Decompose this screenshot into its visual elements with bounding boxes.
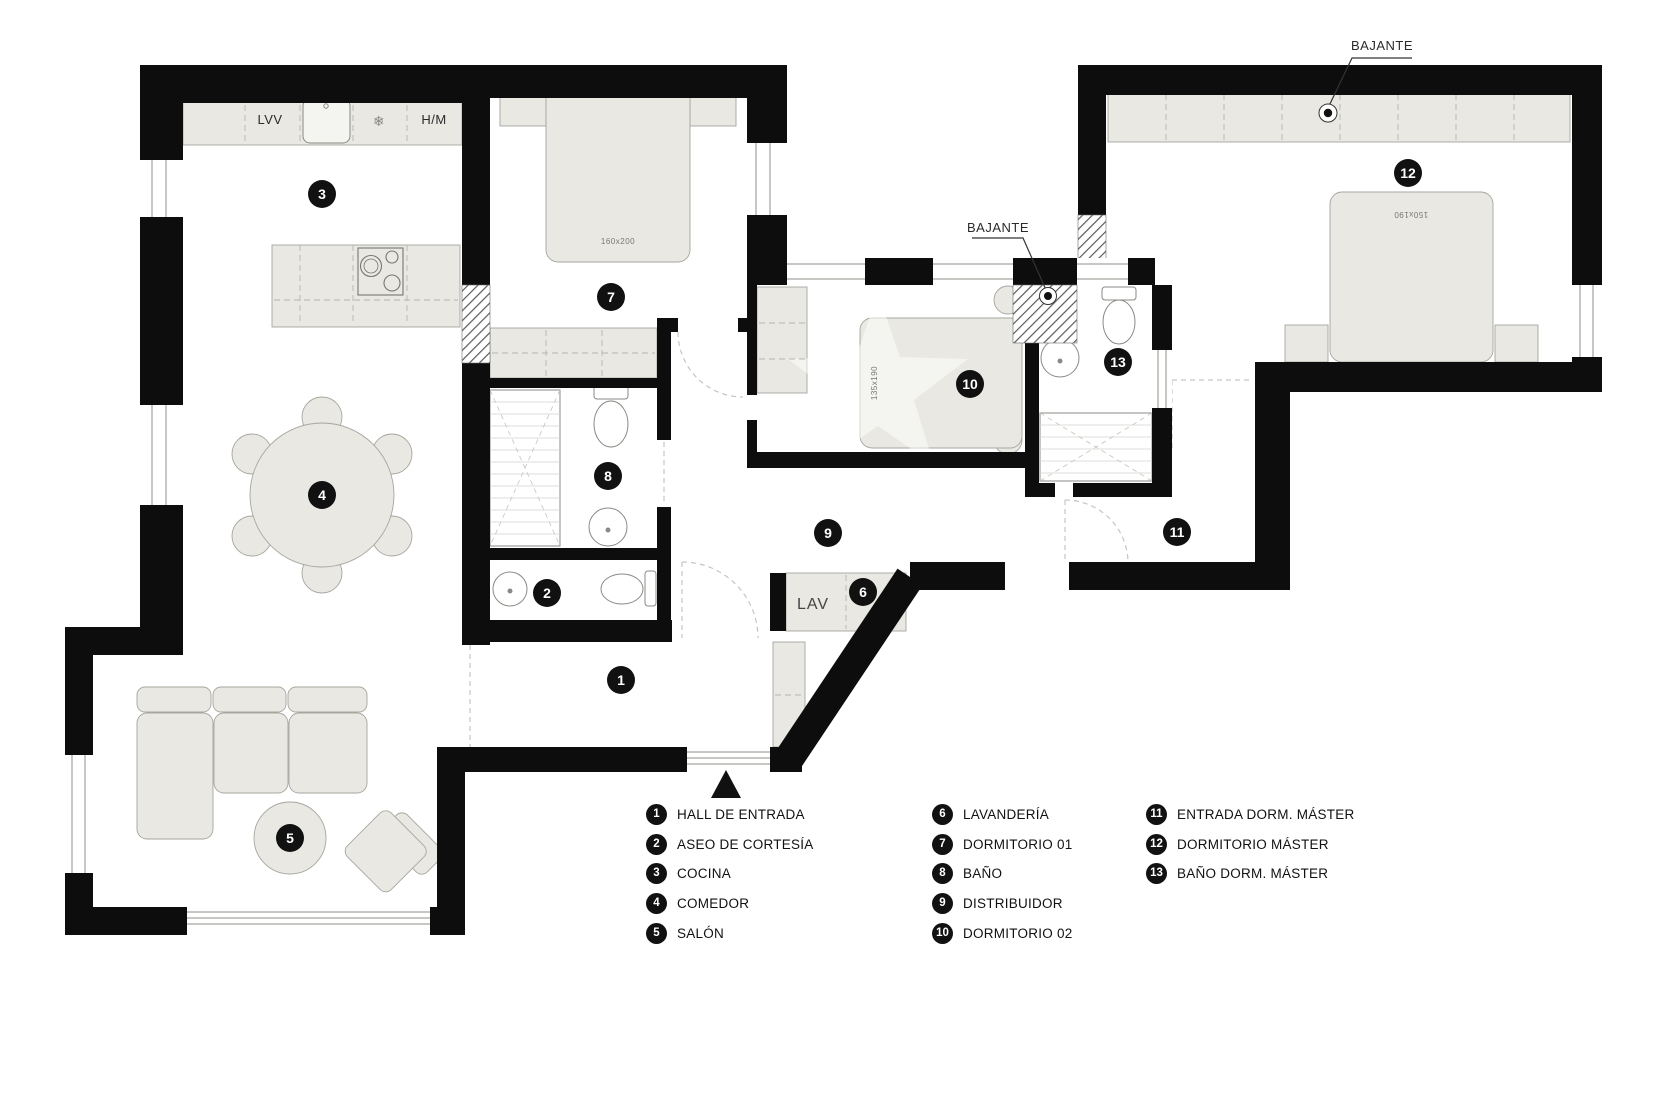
- room-number-8: 8: [594, 462, 622, 490]
- sofa-back: [137, 687, 211, 712]
- legend-item-4: 4COMEDOR: [646, 893, 749, 914]
- svg-text:13: 13: [1110, 354, 1126, 370]
- legend-num-3: 3: [646, 863, 667, 884]
- shower-tray: [490, 390, 560, 546]
- legend-num-12: 12: [1146, 834, 1167, 855]
- svg-text:7: 7: [607, 289, 615, 305]
- kitchen-hm-label: H/M: [421, 112, 446, 127]
- sink-icon: [1041, 339, 1079, 377]
- legend-label-9: DISTRIBUIDOR: [963, 896, 1063, 911]
- room-number-12: 12: [1394, 159, 1422, 187]
- bed-160x200: [546, 84, 690, 262]
- kitchen-lvv-label: LVV: [257, 112, 282, 127]
- room-number-7: 7: [597, 283, 625, 311]
- freezer-icon: ❄: [373, 113, 385, 129]
- door-arc: [1065, 500, 1128, 563]
- svg-text:5: 5: [286, 830, 294, 846]
- legend-item-7: 7DORMITORIO 01: [932, 834, 1073, 855]
- legend-item-8: 8BAÑO: [932, 863, 1002, 884]
- legend-item-11: 11ENTRADA DORM. MÁSTER: [1146, 804, 1355, 825]
- legend-num-9: 9: [932, 893, 953, 914]
- svg-text:9: 9: [824, 525, 832, 541]
- svg-text:10: 10: [962, 376, 978, 392]
- legend-label-4: COMEDOR: [677, 896, 749, 911]
- legend-label-6: LAVANDERÍA: [963, 807, 1049, 822]
- legend-item-3: 3COCINA: [646, 863, 731, 884]
- room-number-3: 3: [308, 180, 336, 208]
- legend-label-12: DORMITORIO MÁSTER: [1177, 837, 1329, 852]
- legend-num-6: 6: [932, 804, 953, 825]
- room-number-2: 2: [533, 579, 561, 607]
- svg-text:1: 1: [617, 672, 625, 688]
- legend-item-2: 2ASEO DE CORTESÍA: [646, 834, 814, 855]
- legend-item-13: 13BAÑO DORM. MÁSTER: [1146, 863, 1328, 884]
- legend-item-12: 12DORMITORIO MÁSTER: [1146, 834, 1329, 855]
- sink-icon: [589, 508, 627, 546]
- door-arc: [682, 562, 758, 638]
- svg-text:4: 4: [318, 487, 326, 503]
- sofa-seat: [214, 713, 288, 793]
- sofa-back: [288, 687, 367, 712]
- bed7-size-label: 160x200: [601, 237, 635, 246]
- legend-label-2: ASEO DE CORTESÍA: [677, 837, 814, 852]
- legend-num-2: 2: [646, 834, 667, 855]
- entrance-arrow-icon: [711, 770, 741, 798]
- legend-num-10: 10: [932, 923, 953, 944]
- toilet-icon: [594, 386, 628, 447]
- legend-label-1: HALL DE ENTRADA: [677, 807, 805, 822]
- cooktop-icon: [358, 248, 403, 295]
- aseo2-fixtures: [493, 571, 656, 606]
- legend-num-7: 7: [932, 834, 953, 855]
- floor-plan-drawing: BAJANTE BAJANTE LVV H/M ❄ LAV 160x200 13…: [0, 0, 1662, 1094]
- legend-label-8: BAÑO: [963, 866, 1002, 881]
- room-number-4: 4: [308, 481, 336, 509]
- legend-num-4: 4: [646, 893, 667, 914]
- bajante-mid-label: BAJANTE: [967, 220, 1029, 235]
- legend-item-10: 10DORMITORIO 02: [932, 923, 1073, 944]
- wardrobe: [1108, 92, 1570, 142]
- sink-icon: [493, 572, 527, 606]
- shower-tray: [1040, 413, 1152, 481]
- toilet-icon: [601, 571, 656, 606]
- legend-label-11: ENTRADA DORM. MÁSTER: [1177, 807, 1355, 822]
- bed10-size-label: 135x190: [870, 366, 879, 400]
- room-number-11: 11: [1163, 518, 1191, 546]
- legend-label-3: COCINA: [677, 866, 731, 881]
- room-number-1: 1: [607, 666, 635, 694]
- sofa-back: [213, 687, 286, 712]
- bajante-top-label: BAJANTE: [1351, 38, 1413, 53]
- nightstand: [1495, 325, 1538, 362]
- legend-num-5: 5: [646, 923, 667, 944]
- svg-text:8: 8: [604, 468, 612, 484]
- room-number-9: 9: [814, 519, 842, 547]
- legend-item-9: 9DISTRIBUIDOR: [932, 893, 1063, 914]
- nightstand: [1285, 325, 1328, 362]
- legend-label-10: DORMITORIO 02: [963, 926, 1073, 941]
- door-arc: [678, 332, 743, 397]
- legend-item-6: 6LAVANDERÍA: [932, 804, 1049, 825]
- legend-num-1: 1: [646, 804, 667, 825]
- svg-text:12: 12: [1400, 165, 1416, 181]
- legend-item-5: 5SALÓN: [646, 923, 724, 944]
- svg-text:11: 11: [1170, 524, 1185, 540]
- sofa-set: [137, 687, 446, 904]
- master-furniture: [1108, 92, 1570, 362]
- room-number-13: 13: [1104, 348, 1132, 376]
- bedroom7-furniture: [490, 84, 736, 378]
- svg-text:3: 3: [318, 186, 326, 202]
- legend-item-1: 1HALL DE ENTRADA: [646, 804, 805, 825]
- bed12-size-label: 150x190: [1394, 210, 1428, 219]
- wardrobe: [757, 287, 807, 393]
- room-number-10: 10: [956, 370, 984, 398]
- floor-plan-page: BAJANTE BAJANTE LVV H/M ❄ LAV 160x200 13…: [0, 0, 1662, 1094]
- toilet-icon: [1102, 287, 1136, 344]
- sofa-chaise: [137, 713, 213, 839]
- svg-text:2: 2: [543, 585, 551, 601]
- laundry-lav-label: LAV: [797, 596, 829, 613]
- legend-label-7: DORMITORIO 01: [963, 837, 1073, 852]
- sofa-seat: [289, 713, 367, 793]
- room-number-6: 6: [849, 578, 877, 606]
- legend-num-13: 13: [1146, 863, 1167, 884]
- legend-num-8: 8: [932, 863, 953, 884]
- svg-text:6: 6: [859, 584, 867, 600]
- legend-label-5: SALÓN: [677, 926, 724, 941]
- legend-num-11: 11: [1146, 804, 1167, 825]
- room-number-5: 5: [276, 824, 304, 852]
- armchair: [342, 800, 446, 904]
- legend-label-13: BAÑO DORM. MÁSTER: [1177, 866, 1328, 881]
- kitchen-sink-icon: [303, 99, 350, 143]
